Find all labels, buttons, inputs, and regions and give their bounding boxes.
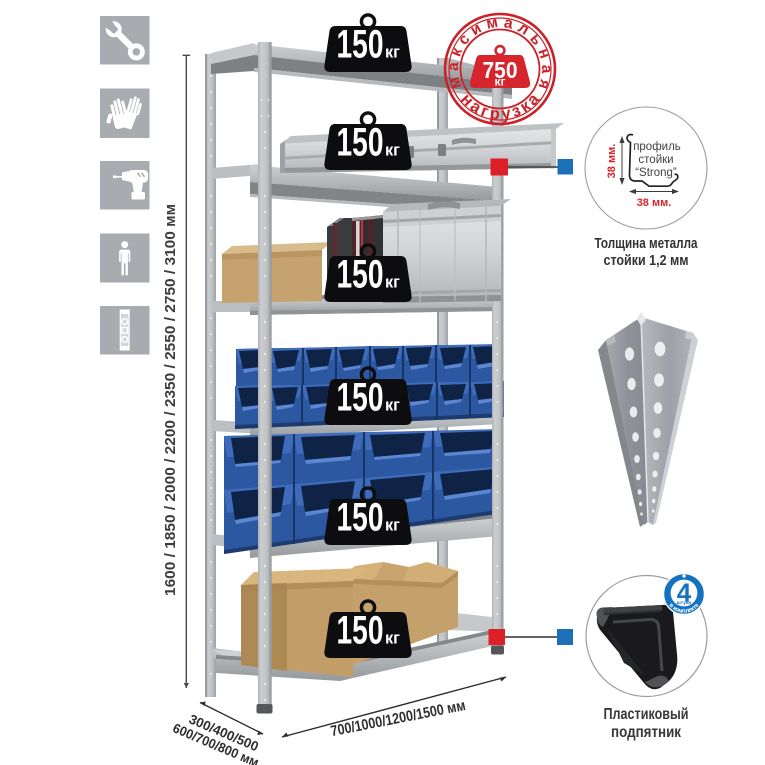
- svg-text:150: 150: [337, 253, 384, 297]
- svg-text:стойки 1,2 мм: стойки 1,2 мм: [604, 253, 689, 269]
- svg-text:150: 150: [337, 121, 384, 165]
- svg-text:стойки: стойки: [638, 154, 673, 166]
- svg-text:150: 150: [337, 23, 384, 67]
- svg-text:кг: кг: [385, 141, 400, 160]
- svg-text:150: 150: [337, 376, 384, 420]
- svg-text:Толщина металла: Толщина металла: [595, 236, 699, 252]
- svg-text:профиль: профиль: [633, 141, 681, 153]
- svg-text:150: 150: [337, 496, 384, 540]
- svg-text:кг: кг: [385, 629, 400, 648]
- svg-text:1600 / 1850 / 2000 / 2200 / 23: 1600 / 1850 / 2000 / 2200 / 2350 / 2550 …: [162, 204, 179, 596]
- svg-text:150: 150: [337, 609, 384, 653]
- svg-text:“Strong”: “Strong”: [635, 167, 677, 179]
- svg-text:кг: кг: [385, 516, 400, 535]
- svg-text:подпятник: подпятник: [611, 724, 682, 741]
- svg-text:кг: кг: [385, 396, 400, 415]
- svg-text:38 мм.: 38 мм.: [637, 197, 672, 209]
- svg-text:Пластиковый: Пластиковый: [604, 706, 689, 723]
- svg-text:кг: кг: [385, 43, 400, 62]
- svg-text:38 мм.: 38 мм.: [606, 144, 618, 179]
- svg-text:штуки: штуки: [677, 601, 692, 606]
- svg-text:кг: кг: [385, 273, 400, 292]
- svg-text:кг: кг: [494, 75, 505, 89]
